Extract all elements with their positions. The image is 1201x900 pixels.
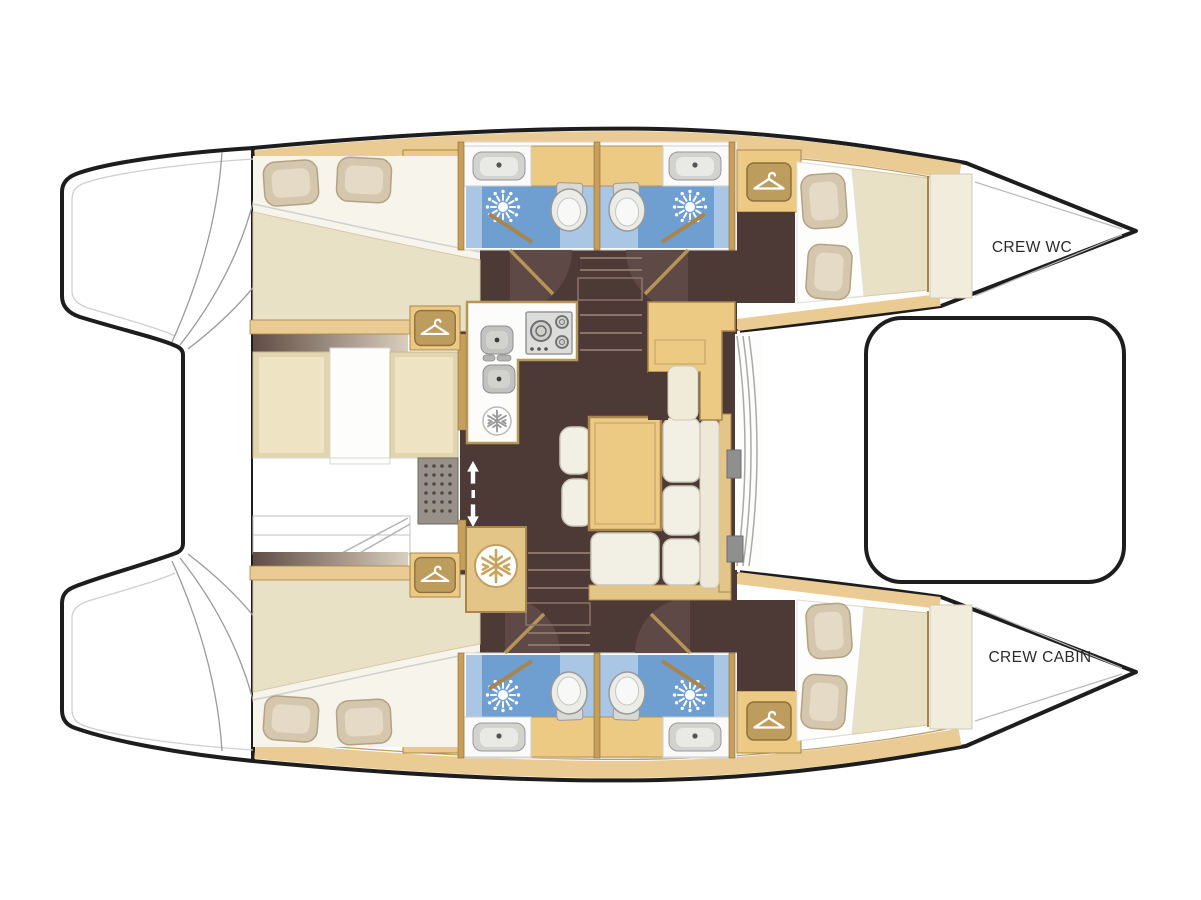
wall bbox=[594, 653, 600, 758]
wardrobe-hanger-icon bbox=[747, 163, 791, 201]
bathroom-sink bbox=[473, 152, 525, 180]
pillow bbox=[336, 699, 392, 746]
pillow bbox=[800, 674, 848, 731]
stool bbox=[560, 427, 591, 474]
stairs bbox=[253, 516, 410, 554]
sofa-cushion bbox=[663, 539, 700, 585]
sofa-cushion bbox=[663, 486, 700, 535]
bathroom-sink bbox=[473, 723, 525, 751]
step-mat bbox=[418, 458, 458, 524]
foredeck-cockpit bbox=[866, 318, 1124, 582]
wardrobe-hanger-icon bbox=[415, 311, 455, 346]
wall bbox=[458, 653, 464, 758]
vanity-counter bbox=[531, 146, 595, 186]
cabin-floor bbox=[737, 600, 795, 691]
vanity-counter bbox=[531, 717, 595, 757]
catamaran-floor-plan: CREW WC bbox=[0, 0, 1201, 900]
floor-plan-drawing: CREW WC bbox=[0, 0, 1201, 900]
berth-filler-panel bbox=[330, 348, 390, 464]
pillow bbox=[263, 695, 320, 743]
wall bbox=[729, 142, 735, 250]
sofa-cushion bbox=[591, 533, 659, 585]
pillow bbox=[805, 244, 853, 301]
vanity-counter bbox=[599, 717, 663, 757]
nav-seat bbox=[668, 366, 698, 420]
nav-floor bbox=[648, 372, 668, 420]
forepeak-berth-section bbox=[253, 334, 458, 570]
wall bbox=[594, 142, 600, 250]
port-aft-cabin bbox=[253, 150, 480, 331]
door-handle bbox=[727, 450, 741, 478]
freezer-cabinet bbox=[466, 527, 526, 612]
pillow bbox=[805, 603, 853, 660]
bathroom-sink bbox=[669, 723, 721, 751]
sofa-cushion bbox=[663, 418, 700, 482]
galley-sink bbox=[481, 326, 513, 354]
berth-cushion-top bbox=[395, 357, 453, 453]
wall bbox=[250, 566, 412, 580]
nav-station bbox=[648, 302, 735, 420]
bathroom-sink bbox=[669, 152, 721, 180]
bow-shelf bbox=[930, 174, 972, 298]
faucet bbox=[483, 355, 495, 361]
pillow bbox=[263, 159, 320, 207]
pillow bbox=[800, 173, 848, 230]
crew-wc-label: CREW WC bbox=[992, 239, 1072, 256]
sofa-rail bbox=[719, 414, 731, 592]
wall bbox=[250, 320, 412, 334]
sofa-backrest bbox=[700, 420, 719, 588]
wall bbox=[458, 142, 464, 250]
crew-cabin-label: CREW CABIN bbox=[988, 649, 1091, 666]
faucet bbox=[497, 355, 511, 361]
wardrobe-hanger-icon bbox=[415, 558, 455, 593]
galley-sink bbox=[483, 365, 515, 393]
stove bbox=[526, 312, 572, 354]
dinette-table bbox=[589, 417, 661, 530]
vanity-counter bbox=[599, 146, 663, 186]
door-handle bbox=[727, 536, 743, 562]
cabin-floor bbox=[737, 212, 795, 303]
berth-cushion-top bbox=[259, 357, 324, 453]
pillow bbox=[336, 157, 392, 204]
wall bbox=[729, 653, 735, 758]
bow-shelf bbox=[930, 605, 972, 729]
starboard-aft-cabin bbox=[253, 575, 480, 753]
wardrobe-hanger-icon bbox=[747, 702, 791, 740]
